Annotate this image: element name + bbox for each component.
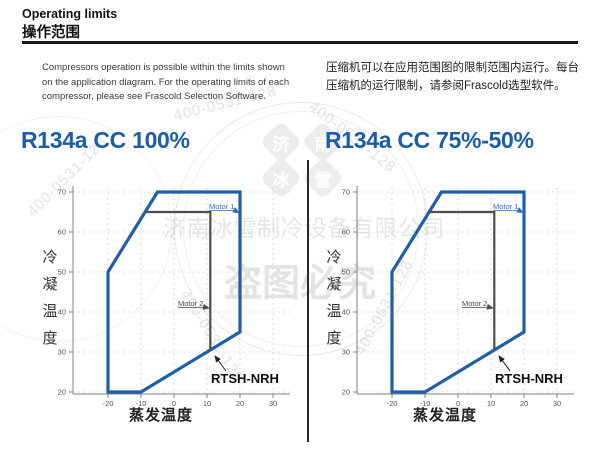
y-tick-label: 50 xyxy=(58,268,66,277)
y-axis-label-char: 凝 xyxy=(326,276,341,293)
logo-char: 济 xyxy=(273,130,290,155)
x-tick-label: 20 xyxy=(520,399,528,408)
x-axis-label: 蒸发温度 xyxy=(129,406,193,424)
operating-envelope xyxy=(392,192,524,392)
motor1-label: Motor 1 xyxy=(493,202,518,211)
gridlines xyxy=(73,188,290,394)
chart-svg: -20-100102030203040506070Motor 1Motor 2R… xyxy=(304,172,588,444)
y-tick-label: 30 xyxy=(58,348,66,357)
motor1-arrow xyxy=(234,210,239,213)
motor2-arrow xyxy=(488,307,493,308)
gridlines xyxy=(357,188,574,394)
x-tick-label: 20 xyxy=(236,399,244,408)
x-tick-label: 30 xyxy=(553,399,561,408)
chart-svg: -20-100102030203040506070Motor 1Motor 2R… xyxy=(20,172,304,444)
motor2-label: Motor 2 xyxy=(462,299,487,308)
part-load-limit-line xyxy=(145,212,210,350)
model-label: RTSH-NRH xyxy=(211,371,279,386)
model-label: RTSH-NRH xyxy=(495,371,563,386)
x-tick-label: 10 xyxy=(203,399,211,408)
y-tick-label: 20 xyxy=(58,388,66,397)
y-tick-label: 40 xyxy=(342,308,350,317)
y-axis-label-char: 温 xyxy=(326,303,341,320)
x-tick-label: -20 xyxy=(387,399,398,408)
intro-paragraph-en: Compressors operation is possible within… xyxy=(42,61,294,105)
x-axis-label: 蒸发温度 xyxy=(413,406,477,424)
chart-title-right: R134a CC 75%-50% xyxy=(325,127,534,154)
intro-paragraph-zh: 压缩机可以在应用范围图的限制范围内运行。每台压缩机的运行限制，请参阅Frasco… xyxy=(326,60,584,95)
y-axis-label-char: 度 xyxy=(42,330,57,347)
y-tick-label: 50 xyxy=(342,268,350,277)
x-tick-label: -20 xyxy=(103,399,114,408)
watermark-logo-petal: 济 xyxy=(260,121,302,163)
y-tick-label: 40 xyxy=(58,308,66,317)
y-axis-label-char: 冷 xyxy=(326,249,341,266)
y-axis-label-char: 温 xyxy=(42,303,57,320)
page-title-zh: 操作范围 xyxy=(22,21,80,42)
y-axis-label-char: 冷 xyxy=(42,249,57,266)
y-tick-label: 70 xyxy=(58,188,66,197)
y-tick-label: 30 xyxy=(342,348,350,357)
motor1-arrow xyxy=(518,210,523,213)
part-load-limit-line xyxy=(429,212,494,350)
y-axis-label-char: 凝 xyxy=(42,276,57,293)
x-tick-label: 10 xyxy=(487,399,495,408)
motor2-label: Motor 2 xyxy=(178,299,203,308)
model-arrow xyxy=(499,356,510,371)
y-tick-label: 60 xyxy=(58,228,66,237)
operating-envelope-chart-100: -20-100102030203040506070Motor 1Motor 2R… xyxy=(20,172,304,444)
motor1-label: Motor 1 xyxy=(209,202,234,211)
motor2-arrow xyxy=(204,307,209,308)
y-tick-label: 60 xyxy=(342,228,350,237)
x-tick-label: 30 xyxy=(269,399,277,408)
operating-envelope-chart-75-50: -20-100102030203040506070Motor 1Motor 2R… xyxy=(304,172,588,444)
catalog-page: 济 南 冰 雪 济南冰雪制冷设备有限公司 盗图必究 400-0531-128 4… xyxy=(0,0,600,450)
y-axis-label-char: 度 xyxy=(326,330,341,347)
model-arrow xyxy=(215,356,226,371)
y-tick-label: 20 xyxy=(342,388,350,397)
page-title-en: Operating limits xyxy=(22,7,117,21)
chart-title-left: R134a CC 100% xyxy=(21,127,190,154)
header-rule xyxy=(22,41,578,44)
operating-envelope xyxy=(108,192,240,392)
y-tick-label: 70 xyxy=(342,188,350,197)
